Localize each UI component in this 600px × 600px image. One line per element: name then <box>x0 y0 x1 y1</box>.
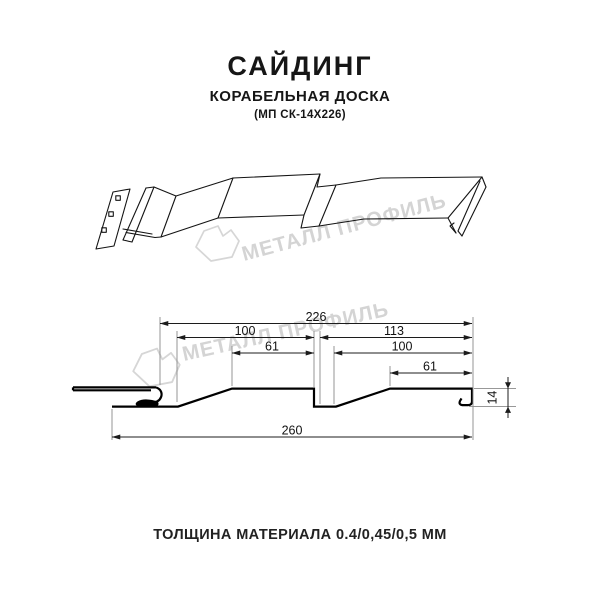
section-profile <box>73 387 472 406</box>
product-model: (МП СК-14Х226) <box>0 110 600 122</box>
dimension-14: 14 <box>486 377 512 418</box>
metall-profil-logo-icon <box>133 349 179 387</box>
lock-ridge-3d <box>123 187 176 242</box>
dimension-label-61-right: 61 <box>423 359 437 373</box>
dimension-label-260: 260 <box>282 423 303 437</box>
dimension-61-right: 61 <box>390 359 472 373</box>
dimension-label-100-right: 100 <box>392 339 413 353</box>
watermark-brand-text: МЕТАЛЛ ПРОФИЛЬ <box>239 189 449 266</box>
material-thickness-caption: ТОЛЩИНА МАТЕРИАЛА 0.4/0,45/0,5 ММ <box>0 527 600 543</box>
metall-profil-logo-icon <box>196 226 239 261</box>
dimension-label-100-left: 100 <box>235 324 256 338</box>
nail-strip-holes <box>102 196 121 233</box>
watermark-3d-view: МЕТАЛЛ ПРОФИЛЬ <box>196 189 449 266</box>
dimension-226: 226 <box>160 310 472 324</box>
header: САЙДИНГ КОРАБЕЛЬНАЯ ДОСКА (МП СК-14Х226) <box>0 53 600 122</box>
end-fold-3d <box>448 177 486 236</box>
dimension-label-226: 226 <box>306 310 327 324</box>
extension-lines <box>112 317 516 440</box>
page-title: САЙДИНГ <box>0 53 600 80</box>
dimension-100-right: 100 <box>334 339 472 353</box>
dimension-label-14: 14 <box>486 391 500 405</box>
watermark-section-view: МЕТАЛЛ ПРОФИЛЬ <box>133 298 391 387</box>
product-drawing-page: МЕТАЛЛ ПРОФИЛЬ МЕТАЛЛ ПРОФИЛЬ <box>0 0 600 600</box>
watermark-brand-text: МЕТАЛЛ ПРОФИЛЬ <box>180 298 391 366</box>
dimension-label-61-left: 61 <box>265 339 279 353</box>
dimension-260: 260 <box>112 423 472 437</box>
product-subtitle: КОРАБЕЛЬНАЯ ДОСКА <box>0 89 600 104</box>
dimension-label-113: 113 <box>384 324 404 338</box>
